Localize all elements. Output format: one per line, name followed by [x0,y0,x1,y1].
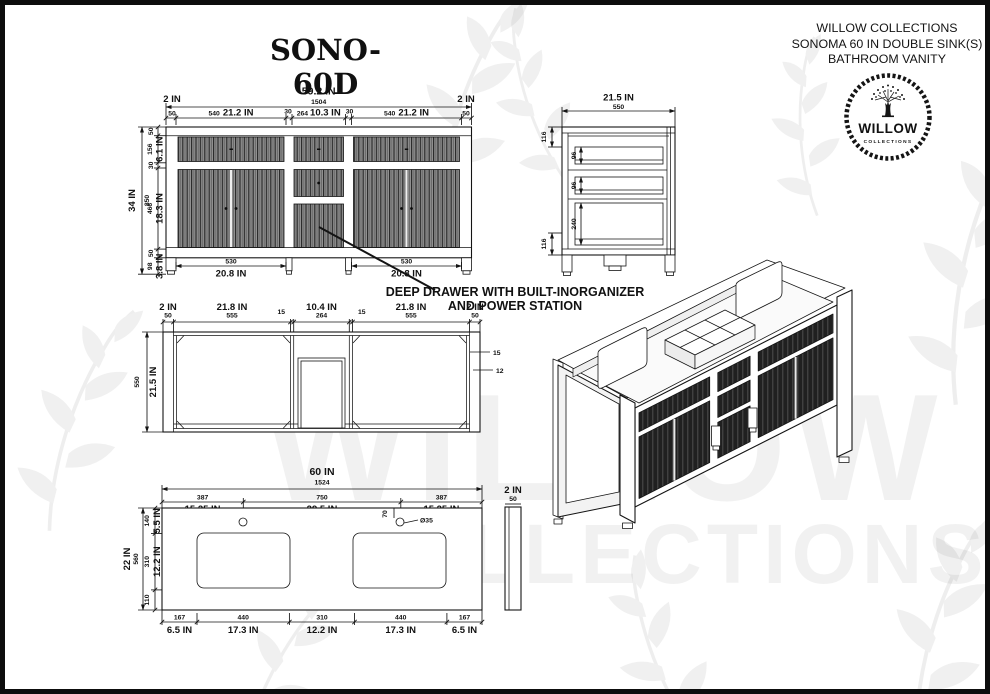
dim-front-v-top: 50 [148,127,155,135]
dim-front-edge-left-mm: 50 [168,111,176,118]
header-line-2: SONOMA 60 IN DOUBLE SINK(S) [767,37,990,53]
dim-front-v-leg-mm: 98 [147,262,154,270]
dim-ct-d2-in: 12.2 IN [152,546,163,577]
dim-ct-b1-in: 6.5 IN [167,625,192,636]
dim-ct-b4-in: 17.3 IN [385,625,416,636]
logo-tree-icon [871,85,905,118]
dim-ct-b2-mm: 440 [238,615,250,622]
dim-ct-depth-in: 22 IN [122,548,133,571]
dim-side-depth-in: 21.5 IN [603,93,634,104]
dim-front-v-gap: 30 [148,161,155,169]
dim-side-drawer1: 96 [571,152,578,160]
dim-front-width-mm: 1504 [311,99,326,106]
dim-front-height-in: 34 IN [127,189,138,212]
dim-front-center: 26410.3 IN [297,108,341,119]
dim-front-gap-left: 30 [284,109,292,116]
drawing-sheet: WILLOW COLLECTIONS SONO-60D WILLOW COLLE… [0,0,990,694]
dim-ct-width-mm: 1524 [314,480,329,487]
front-dim-left: 34 IN 850 50 156 6.1 IN 30 466 18.3 IN 5… [127,125,166,279]
dim-top-gap-left: 15 [277,309,285,316]
brand-logo: WILLOW COLLECTIONS [841,71,937,167]
dim-top-sec-left-in: 21.8 IN [217,302,248,313]
dim-front-v-door-mm: 466 [147,203,154,215]
dim-ct-d1-in: 5.5 IN [152,508,163,533]
dim-top-edge-right-in: 2 IN [466,302,484,313]
dim-top-depth-mm: 550 [134,376,141,388]
dim-front-edge-left-in: 2 IN [163,94,181,105]
dim-ct-edge-in: 2 IN [504,485,522,496]
dim-top-center-mm: 264 [316,313,328,320]
dim-top-edge-right-mm: 50 [471,313,479,320]
ct-edge-profile: 2 IN 50 [504,485,522,610]
dim-front-width-in: 59.2 IN [302,86,336,98]
ct-dim-left: 22 IN 560 140 5.5 IN 310 12.2 IN 110 [122,506,163,612]
dim-ct-width-in: 60 IN [309,466,334,478]
dim-top-edge-left-in: 2 IN [159,302,177,313]
top-dim-top: 2 IN 50 21.8 IN 555 15 10.4 IN 264 15 21… [159,302,484,332]
dim-top-sec-right-in: 21.8 IN [396,302,427,313]
dim-front-edge-right-in: 2 IN [457,94,475,105]
dim-front-legspan-left-mm: 530 [225,259,237,266]
dim-ct-b3-in: 12.2 IN [307,625,338,636]
top-cabinet-drawing [163,332,480,432]
dim-side-top: 116 [541,131,548,142]
isometric-view [540,245,985,580]
dim-ct-faucet-offset: 70 [382,510,389,518]
dim-front-v-panel-mm: 156 [147,143,154,155]
dim-side-drawer3: 240 [571,218,578,230]
side-dim-top: 21.5 IN 550 [562,93,675,128]
dim-top-sec-right-mm: 555 [405,313,417,320]
dim-ct-seg1-mm: 387 [197,495,209,502]
dim-ct-b1-mm: 167 [174,615,186,622]
dim-front-v-door-in: 18.3 IN [155,193,166,224]
dim-ct-b5-mm: 167 [459,615,471,622]
dim-ct-d1-mm: 140 [144,515,151,527]
dim-front-door-left: 54021.2 IN [209,108,254,119]
dim-front-door-right: 54021.2 IN [384,108,429,119]
dim-front-legspan-left-in: 20.8 IN [216,269,247,280]
dim-top-center-in: 10.4 IN [306,302,337,313]
dim-ct-d3-mm: 110 [144,594,151,605]
dim-ct-depth-mm: 560 [133,553,140,565]
countertop-view: 60 IN 1524 387 15.25 IN 750 29.5 IN 387 … [115,455,550,655]
dim-ct-b5-in: 6.5 IN [452,625,477,636]
dim-ct-seg2-mm: 750 [316,495,328,502]
dim-ct-b3-mm: 310 [316,615,328,622]
dim-top-gap-right: 15 [358,309,366,316]
dim-front-gap-right: 30 [346,109,354,116]
logo-subtext: COLLECTIONS [864,139,913,145]
dim-ct-faucet-dia: Ø35 [420,518,433,525]
front-cabinet-drawing [166,127,472,274]
header-line-1: WILLOW COLLECTIONS [767,21,990,37]
dim-top-sec-left-mm: 555 [226,313,238,320]
dim-ct-edge-mm: 50 [509,496,517,503]
dim-top-depth-in: 21.5 IN [148,367,159,398]
header-block: WILLOW COLLECTIONS SONOMA 60 IN DOUBLE S… [767,21,990,68]
iso-cabinet [553,260,852,529]
dim-ct-seg3-mm: 387 [436,495,448,502]
header-line-3: BATHROOM VANITY [767,52,990,68]
dim-front-edge-right-mm: 50 [462,111,470,118]
dim-top-back-inset: 12 [496,368,504,375]
dim-front-v-leg-in: 3.8 IN [155,253,166,278]
top-dim-left: 550 21.5 IN [134,332,163,432]
dim-ct-b2-in: 17.3 IN [228,625,259,636]
dim-side-depth-mm: 550 [613,104,625,111]
dim-top-edge-left-mm: 50 [164,313,172,320]
dim-ct-d2-mm: 310 [144,556,151,568]
ct-slab-drawing: 70 Ø35 [162,508,482,610]
dim-ct-b4-mm: 440 [395,615,407,622]
top-plan-view: 2 IN 50 21.8 IN 555 15 10.4 IN 264 15 21… [125,296,520,454]
front-dim-bottom: 530 20.8 IN 530 20.8 IN [176,259,462,280]
dim-top-back-panel: 15 [493,350,501,357]
dim-front-legspan-right-mm: 530 [401,259,413,266]
logo-wordmark: WILLOW [858,121,917,136]
dim-front-v-panel-in: 6.1 IN [155,136,166,161]
ct-dim-bottom: 167 6.5 IN 440 17.3 IN 310 12.2 IN 440 1… [160,610,484,636]
dim-side-drawer2: 96 [571,182,578,190]
